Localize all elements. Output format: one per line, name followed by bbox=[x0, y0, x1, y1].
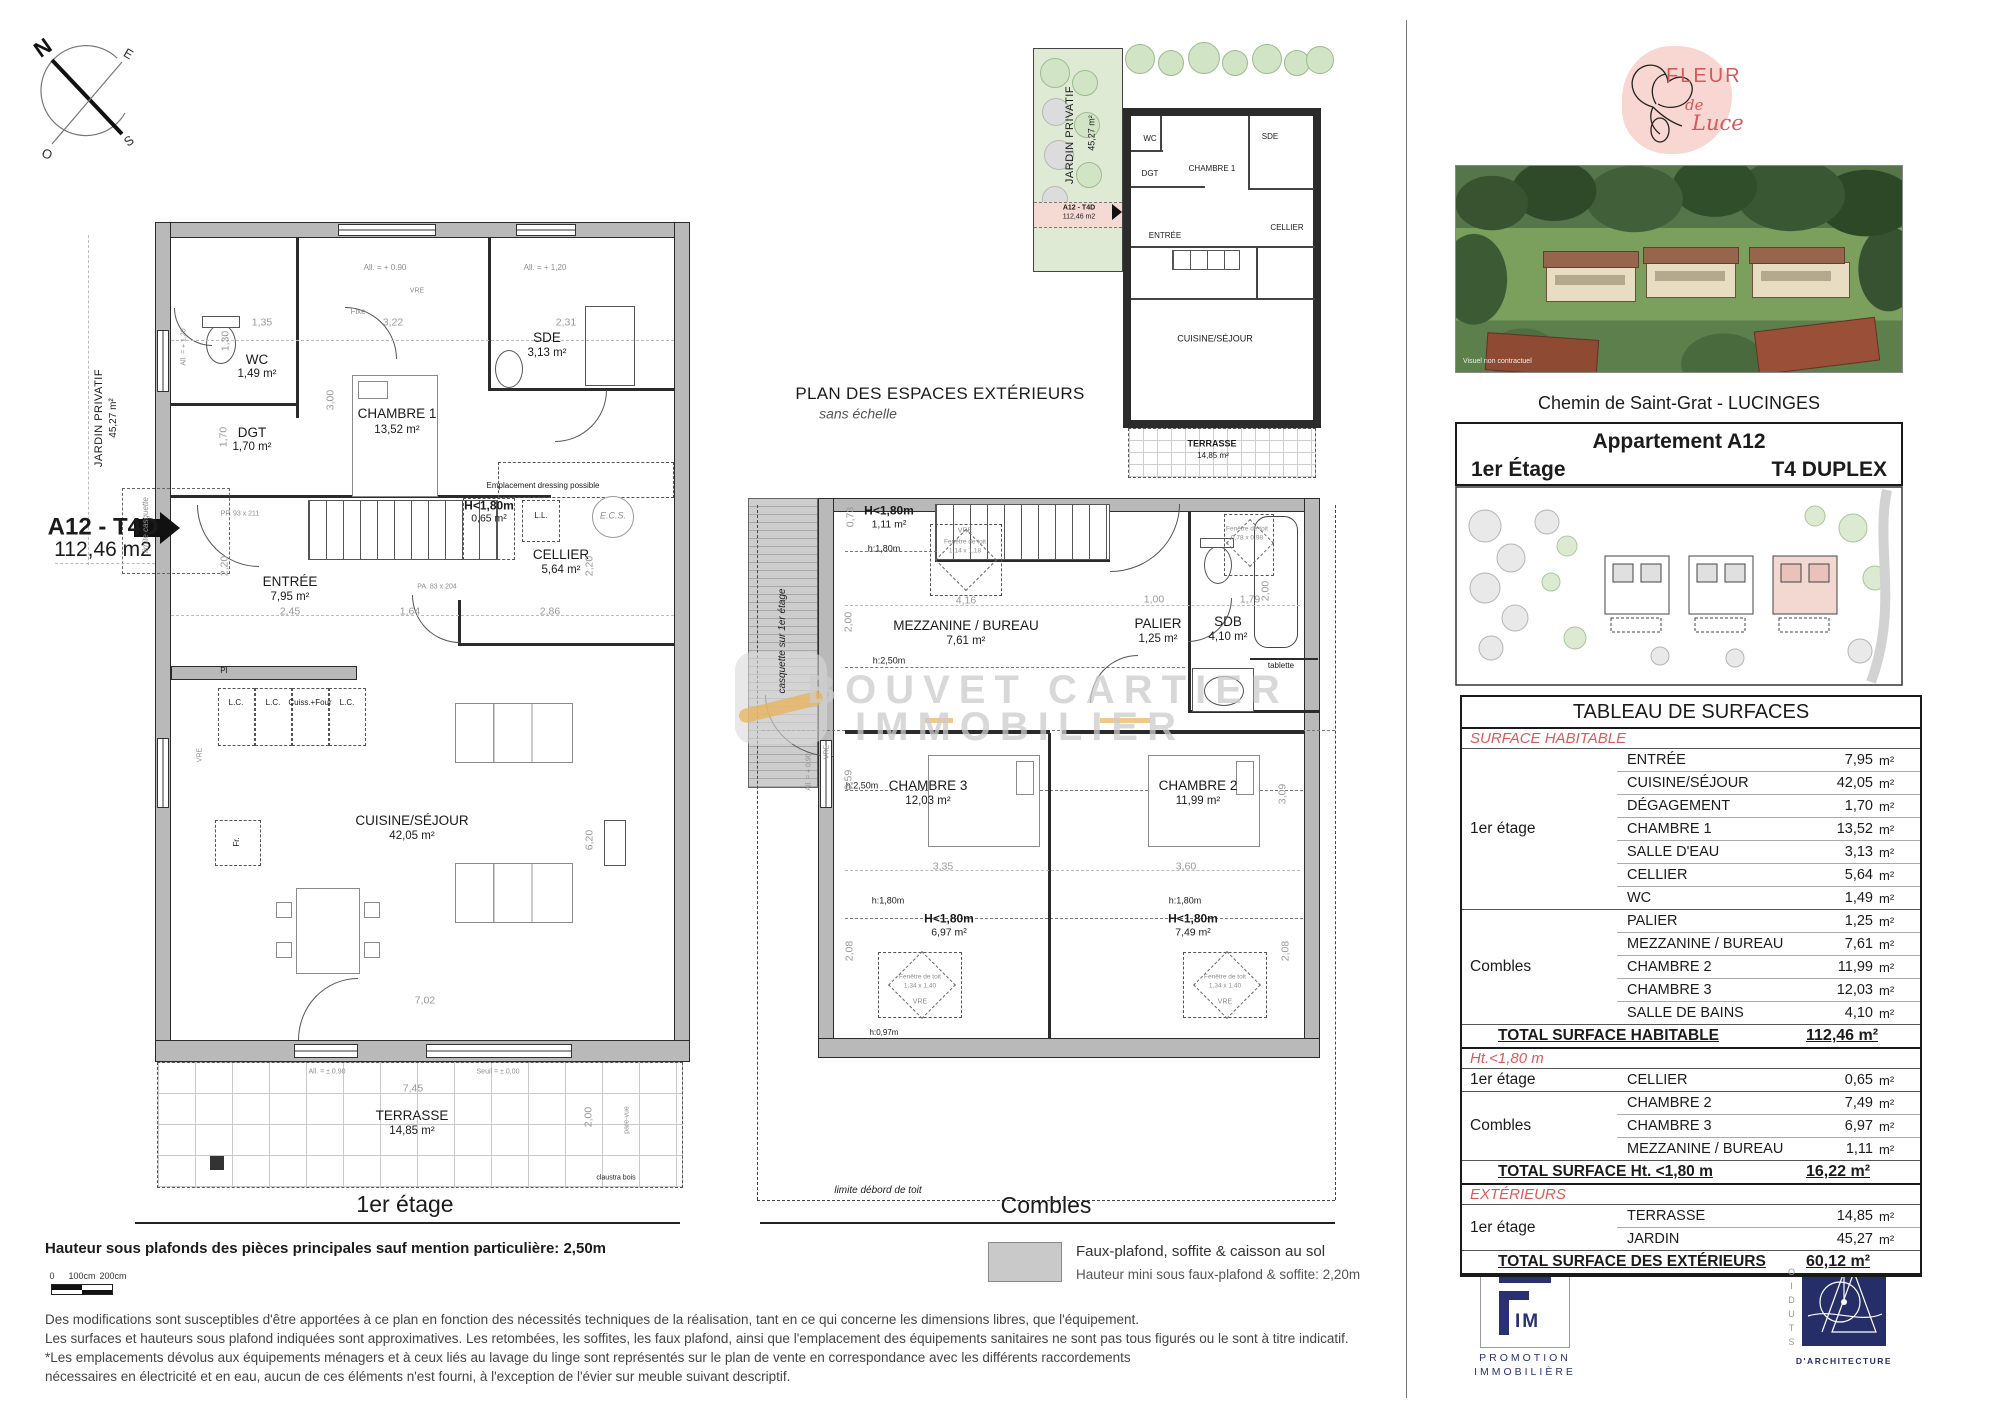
table-room-name: SALLE D'EAU bbox=[1617, 841, 1804, 864]
ext-wall-right bbox=[1313, 108, 1321, 428]
table-room-name: CHAMBRE 3 bbox=[1617, 1115, 1804, 1138]
table-room-name: CELLIER bbox=[1617, 1069, 1804, 1092]
table-room-area: 7,95 bbox=[1804, 749, 1874, 772]
label-p1-dims-d231: 2,31 bbox=[556, 317, 576, 328]
ext-wall-top bbox=[1123, 108, 1321, 116]
table-unit: m² bbox=[1874, 864, 1920, 887]
project-address: Chemin de Saint-Grat - LUCINGES bbox=[1455, 393, 1903, 414]
table-unit: m² bbox=[1874, 795, 1920, 818]
table-room-name: ENTRÉE bbox=[1617, 749, 1804, 772]
disclaimer-2: Les surfaces et hauteurs sous plafond in… bbox=[45, 1331, 1375, 1346]
table-total-value: 16,22 m² bbox=[1804, 1161, 1920, 1185]
legend-swatch bbox=[988, 1242, 1062, 1282]
label-ext-title: PLAN DES ESPACES EXTÉRIEURS bbox=[795, 385, 1084, 403]
label-p1-rooms-cellier-name: CELLIER bbox=[533, 548, 589, 562]
table-group-label: Combles bbox=[1462, 1092, 1617, 1161]
label-p1-rooms-chambre1-area: 13,52 m² bbox=[374, 424, 419, 436]
p1-win-top-1 bbox=[338, 224, 436, 236]
label-p1-rooms-sde-area: 3,13 m² bbox=[528, 347, 567, 359]
table-room-name: CHAMBRE 2 bbox=[1617, 1092, 1804, 1115]
p2-wall-chambres bbox=[1048, 733, 1051, 1038]
label-p2-rooms-palier-name: PALIER bbox=[1134, 617, 1181, 631]
ext-tree-6 bbox=[1076, 162, 1102, 188]
p1-win-left-2 bbox=[157, 738, 169, 808]
table-unit: m² bbox=[1874, 1002, 1920, 1025]
logo-word-fleur: FLEUR bbox=[1666, 66, 1746, 87]
label-p2-ann-fdt2size: 0,78 x 0,98 bbox=[1231, 536, 1263, 543]
label-p1-rooms-cuisine-name: CUISINE/SÉJOUR bbox=[355, 814, 468, 828]
label-p1-rooms-wc-area: 1,49 m² bbox=[238, 368, 277, 380]
studio-vertical-letter: T bbox=[1789, 1322, 1795, 1336]
label-ext-rooms-cellier: CELLIER bbox=[1270, 224, 1303, 232]
table-row: 1er étageENTRÉE7,95m² bbox=[1462, 749, 1920, 772]
table-unit: m² bbox=[1874, 910, 1920, 933]
label-p2-ann-vre: VRE bbox=[958, 527, 972, 534]
table-unit: m² bbox=[1874, 933, 1920, 956]
label-p1-rooms-cuisine-area: 42,05 m² bbox=[389, 830, 434, 842]
scale-200cm: 200cm bbox=[99, 1271, 126, 1281]
table-total-value: 60,12 m² bbox=[1804, 1251, 1920, 1275]
label-p2-rooms-sdb-name: SDB bbox=[1214, 615, 1242, 629]
label-p1-ann-all120: All. = + 1,20 bbox=[524, 264, 567, 272]
p2-wall-right bbox=[1304, 498, 1320, 1058]
ext-wall-bottom bbox=[1123, 420, 1321, 428]
p1-chair-2 bbox=[276, 942, 292, 958]
legend-line-2: Hauteur mini sous faux-plafond & soffite… bbox=[1076, 1267, 1360, 1282]
label-p2-ann-vre: VRE bbox=[913, 998, 927, 1005]
label-p2-ann-fdt3size: 1,34 x 1,40 bbox=[904, 984, 936, 991]
ext-hedge-5 bbox=[1252, 44, 1282, 74]
label-p1-jardin_label: JARDIN PRIVATIF bbox=[94, 369, 106, 467]
label-p1-ann-fr: Fr. bbox=[233, 837, 241, 846]
compass-e: E bbox=[121, 45, 136, 62]
table-total-label: TOTAL SURFACE HABITABLE bbox=[1462, 1025, 1804, 1049]
table-group-label: 1er étage bbox=[1462, 749, 1617, 910]
table-section-header-0: SURFACE HABITABLE bbox=[1462, 728, 1920, 749]
label-p1-ann-pare: pare-vue bbox=[623, 1106, 630, 1134]
table-unit: m² bbox=[1874, 1069, 1920, 1092]
label-p1-ann-lc: L.C. bbox=[266, 699, 281, 707]
label-p1-dims-d200: 2,00 bbox=[583, 1107, 594, 1127]
label-p1-ann-dressing: Emplacement dressing possible bbox=[487, 482, 600, 490]
p1-arc-cellier bbox=[412, 595, 460, 643]
label-p2-ann-fdt: Fenêtre de toit bbox=[944, 540, 986, 547]
label-p2-rooms-mezzanine-area: 7,61 m² bbox=[947, 635, 986, 647]
label-p1-dims-d164: 1,64 bbox=[400, 606, 420, 617]
label-ext-rooms-chambre1: CHAMBRE 1 bbox=[1189, 165, 1236, 173]
site-plan bbox=[1455, 486, 1903, 686]
p2-tablette-line bbox=[1250, 658, 1318, 660]
label-p2-rooms-sdb-area: 4,10 m² bbox=[1209, 631, 1248, 643]
label-p1-dims-d322: 3,22 bbox=[383, 317, 403, 328]
p1-arc-terrasse bbox=[298, 978, 358, 1040]
label-p1-rooms-entree-name: ENTRÉE bbox=[263, 575, 318, 589]
label-p1-ann-allpm: All. = ± 0,90 bbox=[308, 1068, 345, 1075]
table-section-header-1: Ht.<1,80 m bbox=[1462, 1048, 1920, 1069]
ext-line-1 bbox=[1160, 116, 1162, 152]
table-group-label: 1er étage bbox=[1462, 1069, 1617, 1092]
label-p1-rooms-h180-name: H<1,80m bbox=[464, 500, 514, 513]
photo-chalet-1 bbox=[1546, 266, 1636, 302]
p1-wall-bottom bbox=[155, 1040, 690, 1062]
table-total-row: TOTAL SURFACE Ht. <1,80 m16,22 m² bbox=[1462, 1161, 1920, 1185]
label-p2-rooms-chambre2-name: CHAMBRE 2 bbox=[1159, 779, 1238, 793]
table-room-name: CHAMBRE 3 bbox=[1617, 979, 1804, 1002]
label-p1-tag_area: 112,46 m2 bbox=[54, 539, 152, 561]
ext-hedge-7 bbox=[1306, 46, 1334, 74]
p2-dimline-1 bbox=[845, 605, 1300, 606]
table-row: 1er étageTERRASSE14,85m² bbox=[1462, 1205, 1920, 1228]
label-p2-ann-vre: VRE bbox=[823, 745, 830, 759]
label-p2-rooms-chambre2-area: 11,99 m² bbox=[1176, 795, 1221, 807]
label-p1-ann-all120: All. = + 1,20 bbox=[180, 328, 187, 365]
label-p1-dims-d220: 2,20 bbox=[584, 556, 595, 576]
label-p2-ann-h180: h:1,80m bbox=[1169, 896, 1202, 905]
table-unit: m² bbox=[1874, 979, 1920, 1002]
table-row: 1er étageCELLIER0,65m² bbox=[1462, 1069, 1920, 1092]
label-p2-ann-fdt3size: 1,34 x 1,40 bbox=[1209, 984, 1241, 991]
ext-line-4 bbox=[1131, 186, 1205, 188]
label-p1-ann-lc: L.C. bbox=[340, 699, 355, 707]
table-room-area: 12,03 bbox=[1804, 979, 1874, 1002]
label-p1-ann-vre: VRE bbox=[196, 748, 203, 762]
label-ext-rooms-terrasse: TERRASSE bbox=[1187, 439, 1236, 448]
label-ext-rooms-sde: SDE bbox=[1262, 133, 1278, 141]
table-unit: m² bbox=[1874, 1228, 1920, 1251]
label-p2-rooms-h180b-name: H<1,80m bbox=[924, 913, 974, 926]
label-p1-floor_label: 1er étage bbox=[356, 1192, 453, 1216]
label-p2-ann-tablette: tablette bbox=[1268, 662, 1294, 670]
label-p1-ann-vre: VRE bbox=[410, 287, 424, 294]
table-room-name: CHAMBRE 1 bbox=[1617, 818, 1804, 841]
p1-wall-right bbox=[674, 222, 690, 1062]
table-room-area: 42,05 bbox=[1804, 772, 1874, 795]
label-ext-rooms-wc: WC bbox=[1143, 135, 1156, 143]
label-p2-ann-h180: h:1,80m bbox=[868, 544, 901, 553]
label-p2-ann-fdt: Fenêtre de toit bbox=[899, 975, 941, 982]
table-room-area: 11,99 bbox=[1804, 956, 1874, 979]
p1-tv-unit bbox=[604, 820, 626, 866]
label-ext-rooms-entree: ENTRÉE bbox=[1149, 232, 1181, 240]
table-total-row: TOTAL SURFACE HABITABLE112,46 m² bbox=[1462, 1025, 1920, 1049]
photo-foreground-roof-right bbox=[1754, 317, 1880, 373]
disclaimer-1: Des modifications sont susceptibles d'êt… bbox=[45, 1312, 1375, 1327]
ext-line-7 bbox=[1131, 298, 1315, 300]
fim-immobiliere-label: IMMOBILIÈRE bbox=[1462, 1366, 1588, 1378]
legend-line-1: Faux-plafond, soffite & caisson au sol bbox=[1076, 1243, 1325, 1260]
p1-dimline-2 bbox=[171, 615, 674, 616]
p1-ll-box bbox=[522, 500, 560, 542]
compass-o: O bbox=[39, 145, 55, 163]
p1-win-bottom-2 bbox=[426, 1044, 572, 1058]
p1-floor-rule bbox=[135, 1222, 680, 1224]
p1-basin-sde bbox=[495, 350, 523, 388]
photo-caption: Visuel non contractuel bbox=[1463, 358, 1532, 365]
p1-pillow bbox=[358, 381, 388, 399]
label-p2-rooms-h180c-name: H<1,80m bbox=[1168, 913, 1218, 926]
table-room-area: 13,52 bbox=[1804, 818, 1874, 841]
table-room-name: DÉGAGEMENT bbox=[1617, 795, 1804, 818]
label-p2-dims-d309: 3,09 bbox=[1277, 784, 1288, 804]
label-p2-ann-fdt: Fenêtre de toit bbox=[1204, 975, 1246, 982]
studio-vertical-label: STUDIO bbox=[1788, 1262, 1795, 1350]
p1-sofa-1 bbox=[455, 703, 573, 763]
table-room-area: 3,13 bbox=[1804, 841, 1874, 864]
table-unit: m² bbox=[1874, 749, 1920, 772]
logo-word-luce: Luce bbox=[1692, 112, 1744, 134]
p1-part-sde-left bbox=[488, 238, 491, 388]
label-p2-ann-fdt: Fenêtre de toit bbox=[1226, 527, 1268, 534]
label-p2-ann-h097: h:0,97m bbox=[870, 1029, 899, 1037]
label-ext-tag_area: 112,46 m2 bbox=[1063, 213, 1096, 220]
photo-foreground-roof-left bbox=[1485, 332, 1599, 373]
label-p2-ann-vre: VRE bbox=[1218, 998, 1232, 1005]
panel-divider bbox=[1406, 20, 1407, 1398]
scale-100cm: 100cm bbox=[68, 1271, 95, 1281]
label-p1-ann-fixe: Fixe bbox=[350, 308, 365, 316]
table-unit: m² bbox=[1874, 1205, 1920, 1228]
label-p1-rooms-wc-name: WC bbox=[246, 353, 269, 367]
compass-icon: N E S O bbox=[22, 18, 142, 168]
label-p1-ann-lc: L.C. bbox=[229, 699, 244, 707]
ext-hedge-2 bbox=[1158, 50, 1184, 76]
p1-win-top-2 bbox=[516, 224, 576, 236]
p1-kitchen-cell-3 bbox=[292, 688, 329, 746]
table-section-header-2: EXTÉRIEURS bbox=[1462, 1184, 1920, 1205]
table-row: ComblesPALIER1,25m² bbox=[1462, 910, 1920, 933]
compass-s: S bbox=[121, 132, 137, 149]
p1-chair-4 bbox=[364, 942, 380, 958]
p1-kitchen-cell-2 bbox=[255, 688, 292, 746]
ext-hedge-3 bbox=[1188, 42, 1220, 74]
table-room-name: MEZZANINE / BUREAU bbox=[1617, 933, 1804, 956]
label-p2-dims-d100: 1,00 bbox=[1144, 594, 1164, 605]
table-total-value: 112,46 m² bbox=[1804, 1025, 1920, 1049]
p1-shower bbox=[585, 306, 635, 386]
p2-bound-right bbox=[1335, 505, 1336, 1200]
label-p2-rooms-h180b-area: 6,97 m² bbox=[931, 927, 967, 938]
table-room-name: CUISINE/SÉJOUR bbox=[1617, 772, 1804, 795]
surface-table: TABLEAU DE SURFACESSURFACE HABITABLE1er … bbox=[1460, 695, 1922, 1277]
label-p2-rooms-h180a-name: H<1,80m bbox=[864, 505, 914, 518]
p1-chair-3 bbox=[364, 902, 380, 918]
p1-terr-post bbox=[210, 1156, 224, 1170]
label-ext-rooms-cuisine: CUISINE/SÉJOUR bbox=[1177, 334, 1253, 343]
studio-vertical-letter: I bbox=[1790, 1280, 1793, 1294]
ext-tree-1 bbox=[1040, 58, 1070, 88]
fim-logo-im: IM bbox=[1515, 1311, 1540, 1333]
label-p1-rooms-terrasse-name: TERRASSE bbox=[376, 1109, 449, 1123]
p2-dimline-2 bbox=[845, 870, 1300, 871]
table-room-area: 4,10 bbox=[1804, 1002, 1874, 1025]
p2-pillow-2 bbox=[1236, 761, 1254, 795]
disclaimer-3: *Les emplacements dévolus aux équipement… bbox=[45, 1350, 1375, 1365]
label-ext-subtitle: sans échelle bbox=[819, 407, 897, 422]
apartment-type: T4 DUPLEX bbox=[1771, 458, 1887, 482]
p1-table bbox=[296, 888, 360, 974]
label-p1-ann-pi: PI bbox=[220, 667, 228, 675]
ext-hedge-4 bbox=[1222, 50, 1248, 76]
table-room-area: 1,70 bbox=[1804, 795, 1874, 818]
plan-sheet: N E S O FLEUR de Luce Visuel non contrac… bbox=[0, 0, 2000, 1413]
ext-line-8 bbox=[1256, 246, 1258, 300]
ext-stairs bbox=[1172, 250, 1240, 270]
p1-win-bottom-1 bbox=[294, 1044, 358, 1058]
table-room-name: CELLIER bbox=[1617, 864, 1804, 887]
label-p1-rooms-cellier-area: 5,64 m² bbox=[542, 564, 581, 576]
label-p1-ann-ecs: E.C.S. bbox=[600, 511, 626, 520]
compass-n: N bbox=[29, 33, 56, 63]
label-p1-ann-limite: limite casquette bbox=[142, 497, 150, 553]
ext-tag-arrow bbox=[1112, 204, 1122, 220]
label-ext-jardin: JARDIN PRIVATIF bbox=[1065, 86, 1077, 184]
table-room-name: SALLE DE BAINS bbox=[1617, 1002, 1804, 1025]
p1-win-left-1 bbox=[157, 330, 169, 392]
table-room-area: 45,27 bbox=[1804, 1228, 1874, 1251]
project-photo bbox=[1455, 165, 1903, 373]
table-room-name: TERRASSE bbox=[1617, 1205, 1804, 1228]
table-total-row: TOTAL SURFACE DES EXTÉRIEURS60,12 m² bbox=[1462, 1251, 1920, 1275]
ext-line-5 bbox=[1248, 188, 1314, 190]
label-p1-dims-d130: 1,30 bbox=[220, 331, 231, 351]
label-p2-dims-d335: 3,35 bbox=[933, 861, 953, 872]
label-p1-dims-d300: 3,00 bbox=[325, 390, 336, 410]
label-p2-dims-d208: 2,08 bbox=[1280, 941, 1291, 961]
label-p2-dims-d059: 0,59 bbox=[843, 770, 854, 790]
table-room-area: 14,85 bbox=[1804, 1205, 1874, 1228]
ext-line-2 bbox=[1248, 116, 1250, 190]
table-unit: m² bbox=[1874, 1138, 1920, 1161]
table-room-area: 1,25 bbox=[1804, 910, 1874, 933]
label-p1-jardin_area: 45,27 m² bbox=[109, 398, 120, 437]
label-p1-dims-d745: 7,45 bbox=[403, 1083, 423, 1094]
label-p1-dims-d620: 6,20 bbox=[584, 830, 595, 850]
p1-sofa-2 bbox=[455, 863, 573, 923]
label-p2-casquette: casquette sur 1er étage bbox=[778, 588, 789, 693]
label-p2-rooms-palier-area: 1,25 m² bbox=[1139, 633, 1178, 645]
label-p1-ann-ll: L.L. bbox=[534, 512, 547, 520]
photo-chalet-2 bbox=[1646, 262, 1736, 298]
label-wm-line2: IMMOBILIER bbox=[855, 706, 1185, 748]
p2-wall-bottom bbox=[818, 1038, 1320, 1058]
table-room-area: 6,97 bbox=[1804, 1115, 1874, 1138]
table-room-area: 7,49 bbox=[1804, 1092, 1874, 1115]
label-p2-dims-d200l: 2,00 bbox=[843, 612, 854, 632]
p1-wall-pi bbox=[171, 666, 357, 680]
apartment-floor: 1er Étage bbox=[1471, 458, 1566, 482]
photo-chalet-3 bbox=[1752, 262, 1850, 298]
surface-table-title: TABLEAU DE SURFACES bbox=[1462, 697, 1920, 728]
studio-architecture-label: D'ARCHITECTURE bbox=[1788, 1356, 1900, 1366]
apartment-info-box: Appartement A12 1er Étage T4 DUPLEX bbox=[1455, 422, 1903, 486]
label-p2-dims-d200r: 2,00 bbox=[1260, 581, 1271, 601]
p1-casquette-dash-h bbox=[55, 563, 155, 564]
table-room-name: PALIER bbox=[1617, 910, 1804, 933]
label-p2-dims-d179: 1,79 bbox=[1240, 594, 1260, 605]
table-total-label: TOTAL SURFACE Ht. <1,80 m bbox=[1462, 1161, 1804, 1185]
table-room-area: 1,49 bbox=[1804, 887, 1874, 910]
label-p2-dims-d360: 3,60 bbox=[1176, 861, 1196, 872]
studio-vertical-letter: O bbox=[1788, 1266, 1795, 1280]
ext-wall-left bbox=[1123, 108, 1131, 428]
table-room-area: 7,61 bbox=[1804, 933, 1874, 956]
p1-part-wc-bottom bbox=[171, 403, 299, 406]
table-total-label: TOTAL SURFACE DES EXTÉRIEURS bbox=[1462, 1251, 1804, 1275]
label-p2-dims-d208: 2,08 bbox=[844, 941, 855, 961]
table-unit: m² bbox=[1874, 818, 1920, 841]
label-p2-dims-d416: 4,16 bbox=[956, 595, 976, 606]
fim-promotion-label: PROMOTION bbox=[1462, 1352, 1588, 1364]
label-p1-rooms-h180-area: 0,65 m² bbox=[471, 513, 507, 524]
label-p1-rooms-dgt-name: DGT bbox=[238, 426, 267, 440]
label-p2-floor_label: Combles bbox=[1001, 1193, 1092, 1217]
label-p2-rooms-h180a-area: 1,11 m² bbox=[872, 519, 907, 530]
p1-part-wc-right bbox=[296, 238, 299, 418]
label-p2-rooms-chambre3-name: CHAMBRE 3 bbox=[889, 779, 968, 793]
table-room-name: MEZZANINE / BUREAU bbox=[1617, 1138, 1804, 1161]
label-p1-rooms-entree-area: 7,95 m² bbox=[271, 591, 310, 603]
p1-tag-arrow-head bbox=[160, 512, 180, 544]
p1-kitchen-cell-1 bbox=[218, 688, 255, 746]
label-p2-ann-h250: h:2,50m bbox=[873, 656, 906, 665]
table-room-area: 5,64 bbox=[1804, 864, 1874, 887]
label-ext-rooms-terrasse_area: 14,85 m² bbox=[1197, 452, 1229, 460]
p1-arc-sde bbox=[555, 390, 607, 442]
studio-vertical-letter: D bbox=[1788, 1294, 1795, 1308]
label-p1-dims-d702: 7,02 bbox=[415, 995, 435, 1006]
label-p1-rooms-dgt-area: 1,70 m² bbox=[233, 441, 272, 453]
p1-chair-1 bbox=[276, 902, 292, 918]
table-group-label: 1er étage bbox=[1462, 1205, 1617, 1251]
label-p1-ann-all090: All. = + 0.90 bbox=[364, 264, 407, 272]
label-ext-jardin_area: 45,27 m² bbox=[1087, 115, 1096, 151]
table-room-area: 1,11 bbox=[1804, 1138, 1874, 1161]
label-p1-rooms-terrasse-area: 14,85 m² bbox=[389, 1125, 434, 1137]
p2-bound-left bbox=[757, 505, 758, 1200]
label-p1-ann-pa: PA. 83 x 204 bbox=[417, 583, 457, 590]
table-room-area: 0,65 bbox=[1804, 1069, 1874, 1092]
table-room-name: WC bbox=[1617, 887, 1804, 910]
label-p1-ann-claustra: claustra bois bbox=[596, 1174, 635, 1181]
label-p2-limite: limite débord de toit bbox=[834, 1186, 921, 1197]
table-unit: m² bbox=[1874, 1092, 1920, 1115]
label-ext-rooms-dgt: DGT bbox=[1142, 170, 1159, 178]
p2-ddline-5 bbox=[845, 918, 1303, 919]
studio-vertical-letter: S bbox=[1789, 1336, 1795, 1350]
scale-0: 0 bbox=[49, 1271, 54, 1281]
label-p1-dims-d170: 1,70 bbox=[218, 427, 229, 447]
label-p2-ann-h180: h:1,80m bbox=[872, 896, 905, 905]
table-room-name: CHAMBRE 2 bbox=[1617, 956, 1804, 979]
label-p1-dims-d135: 1,35 bbox=[252, 317, 272, 328]
ext-green-band bbox=[1034, 228, 1122, 270]
table-unit: m² bbox=[1874, 956, 1920, 979]
label-p1-dims-d245: 2,45 bbox=[280, 606, 300, 617]
label-p1-rooms-chambre1-name: CHAMBRE 1 bbox=[358, 407, 437, 421]
ceiling-height-note: Hauteur sous plafonds des pièces princip… bbox=[45, 1240, 606, 1257]
label-p2-rooms-chambre3-area: 12,03 m² bbox=[905, 795, 950, 807]
table-group-label: Combles bbox=[1462, 910, 1617, 1025]
p2-pillow-3 bbox=[1016, 761, 1034, 795]
label-p1-dims-d286: 2,86 bbox=[540, 606, 560, 617]
label-p2-rooms-mezzanine-name: MEZZANINE / BUREAU bbox=[893, 619, 1039, 633]
p1-part-cellier-bottom bbox=[458, 643, 674, 646]
table-unit: m² bbox=[1874, 887, 1920, 910]
p2-winder bbox=[1110, 504, 1180, 572]
label-p1-dims-d220: 2,20 bbox=[219, 556, 230, 576]
label-p1-ann-cuiss: Cuiss.+Four bbox=[288, 699, 331, 707]
label-p2-ann-all090v: All. = + 0,90 bbox=[805, 753, 812, 790]
